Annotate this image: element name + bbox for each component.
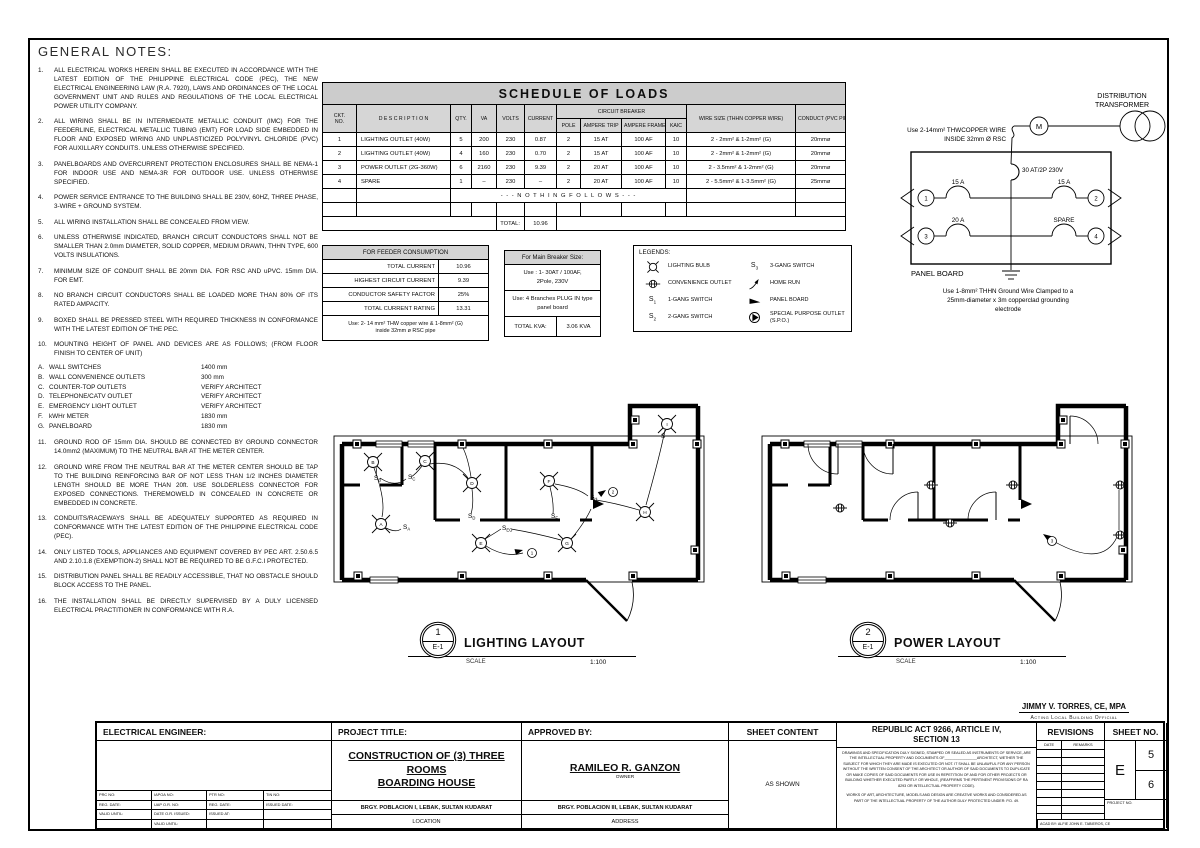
junction-box: [458, 572, 466, 580]
schedule-cell: 2: [557, 147, 581, 161]
approver-name: RAMILEO R. GANZON: [570, 762, 680, 774]
kva-value: 3.06 KVA: [557, 317, 601, 337]
mounting-value: VERIFY ARCHITECT: [201, 383, 318, 393]
switch-label: SF: [551, 513, 558, 521]
convenience-outlet: [924, 481, 938, 489]
note-number: 4.: [38, 193, 49, 211]
junction-box: [1119, 546, 1127, 554]
main-breaker-table: For Main Breaker Size:Use : 1- 30AT / 10…: [504, 250, 601, 337]
nothing-follows-row: - - - N O T H I N G F O L L O W S - - -: [323, 189, 846, 203]
schedule-cell: 100 AF: [622, 175, 666, 189]
junction-box: [353, 440, 361, 448]
sheet-content-value: AS SHOWN: [729, 741, 836, 828]
official-name: JIMMY V. TORRES, CE, MPA: [1019, 702, 1129, 713]
schedule-cell: 25mmø: [796, 175, 846, 189]
engineer-field: [207, 819, 264, 829]
callout-sheet-ref: E-1: [853, 642, 883, 654]
schedule-cell: 230: [497, 161, 525, 175]
note-item: 3.PANELBOARDS AND OVERCURRENT PROTECTION…: [38, 160, 318, 187]
legend-symbol: [644, 259, 661, 274]
schedule-cell: 15 AT: [581, 147, 622, 161]
lighting-callout-bubble: 1 E-1: [422, 624, 454, 656]
note-number: 6.: [38, 233, 49, 260]
breaker-use1: Use : 1- 30AT / 100AF,2Pole, 230V: [505, 265, 601, 291]
schedule-cell: 10: [666, 175, 687, 189]
mounting-value: VERIFY ARCHITECT: [201, 392, 318, 402]
note-text: MOUNTING HEIGHT OF PANEL AND DEVICES ARE…: [54, 340, 318, 358]
engineer-header: ELECTRICAL ENGINEER:: [97, 723, 331, 741]
svg-text:M: M: [1036, 122, 1042, 131]
schedule-cell: 15 AT: [581, 133, 622, 147]
breaker-table: For Main Breaker Size:Use : 1- 30AT / 10…: [504, 250, 601, 337]
svg-text:H: H: [643, 510, 647, 516]
legend-symbol: [746, 293, 763, 308]
junction-box: [693, 440, 701, 448]
schedule-cell: 1: [451, 175, 472, 189]
revisions-date-col: DATE: [1037, 741, 1062, 749]
note-item: 6.UNLESS OTHERWISE INDICATED, BRANCH CIR…: [38, 233, 318, 260]
schedule-row: 2LIGHTING OUTLET (40W)41602300.70215 AT1…: [323, 147, 846, 161]
note-text: POWER SERVICE ENTRANCE TO THE BUILDING S…: [54, 193, 318, 211]
schedule-cell: LIGHTING OUTLET (40W): [357, 133, 451, 147]
revision-date-cell: [1037, 790, 1062, 797]
circuit-wire: [1055, 490, 1119, 554]
note-number: 11.: [38, 438, 49, 456]
schedule-cell: 20 AT: [581, 175, 622, 189]
note-text: DISTRIBUTION PANEL SHALL BE READILY ACCE…: [54, 572, 318, 590]
legend-item: LIGHTING BULB: [644, 258, 742, 275]
project-title-header: PROJECT TITLE:: [332, 723, 521, 741]
light-fixture: F: [540, 472, 558, 490]
note-number: 7.: [38, 267, 49, 285]
svg-text:B: B: [371, 460, 374, 466]
junction-box: [886, 572, 894, 580]
mounting-label: TELEPHONE/CATV OUTLET: [49, 392, 201, 402]
engineer-field: [97, 819, 152, 829]
note-item: 13.CONDUITS/RACEWAYS SHALL BE ADEQUATELY…: [38, 514, 318, 541]
revision-date-cell: [1037, 806, 1062, 813]
mounting-key: G.: [38, 422, 49, 432]
note-item: 1.ALL ELECTRICAL WORKS HEREIN SHALL BE E…: [38, 66, 318, 111]
note-item: 15.DISTRIBUTION PANEL SHALL BE READILY A…: [38, 572, 318, 590]
junction-box: [354, 572, 362, 580]
revision-date-cell: [1037, 766, 1062, 773]
panel-board-icon: [747, 295, 762, 307]
window-symbol: [408, 441, 434, 447]
svg-text:TRANSFORMER: TRANSFORMER: [1095, 102, 1149, 109]
power-layout-title: POWER LAYOUT: [894, 636, 1001, 650]
main-door-leaf: [586, 580, 627, 621]
svg-text:Use 1-8mm² THHN Ground Wire Cl: Use 1-8mm² THHN Ground Wire Clamped to a: [943, 288, 1074, 295]
power-svg: 3: [758, 400, 1150, 632]
sheet-number-bottom: 6: [1136, 771, 1166, 800]
mounting-key: D.: [38, 392, 49, 402]
schedule-cell: 2 - 2mm² & 1-2mm² (G): [687, 133, 796, 147]
switch-s1-icon: S1: [649, 296, 656, 304]
svg-text:3: 3: [924, 234, 928, 240]
note-number: 5.: [38, 218, 49, 227]
schedule-cell: 1: [323, 133, 357, 147]
feeder-value: 25%: [439, 288, 489, 302]
home-run: 1: [514, 547, 536, 557]
revision-date-cell: [1037, 758, 1062, 765]
note-text: GROUND WIRE FROM THE NEUTRAL BAR AT THE …: [54, 463, 318, 508]
legend-label: 2-GANG SWITCH: [668, 314, 712, 321]
svg-text:Use 2-14mm² THWCOPPER WIRE: Use 2-14mm² THWCOPPER WIRE: [907, 127, 1006, 134]
schedule-cell: 10: [666, 147, 687, 161]
light-fixture: I: [658, 415, 676, 433]
col-qty: QTY.: [451, 105, 472, 133]
main-door-leaf: [1014, 580, 1055, 621]
caption-line: [838, 656, 1066, 657]
interior-walls: [770, 444, 1020, 520]
engineer-field: VALID UNTIL:: [97, 809, 152, 819]
revision-row: [1037, 798, 1104, 806]
legend-label: LIGHTING BULB: [668, 263, 710, 270]
note-number: 13.: [38, 514, 49, 541]
junction-box: [1057, 440, 1065, 448]
approved-by-header: APPROVED BY:: [522, 723, 728, 741]
circuit-wire: [485, 529, 501, 539]
convenience-outlet: [833, 504, 847, 512]
note-number: 1.: [38, 66, 49, 111]
col-va: VA: [472, 105, 497, 133]
junction-box: [782, 572, 790, 580]
light-fixture: E: [472, 534, 490, 552]
republic-act-para2: WORKS OF ART, ARCHITECTURE, MODELS AND D…: [842, 793, 1031, 804]
revision-row: [1037, 766, 1104, 774]
schedule-cell: SPARE: [357, 175, 451, 189]
engineer-field: [264, 809, 331, 819]
mounting-heights: A.WALL SWITCHES1400 mmB.WALL CONVENIENCE…: [38, 363, 318, 432]
switch-label: SC: [408, 474, 415, 482]
sheet-series: E: [1105, 741, 1136, 799]
revision-row: [1037, 758, 1104, 766]
mounting-row: B.WALL CONVENIENCE OUTLETS300 mm: [38, 373, 318, 383]
light-fixture: H: [636, 503, 654, 521]
project-location: BRGY. POBLACION I, LEBAK, SULTAN KUDARAT: [332, 800, 521, 814]
schedule-cell: 100 AF: [622, 147, 666, 161]
feeder-note: Use: 2- 14 mm² THW copper wire & 1-8mm² …: [323, 316, 489, 341]
schedule-table: SCHEDULE OF LOADSCKT.NO.D E S C R I P T …: [322, 82, 846, 231]
note-number: 14.: [38, 548, 49, 566]
col-current: CURRENT: [525, 105, 557, 133]
junction-box: [458, 440, 466, 448]
total-label: TOTAL:: [497, 217, 525, 231]
total-value: 10.96: [525, 217, 557, 231]
project-title-line1: CONSTRUCTION OF (3) THREE ROOMS: [332, 750, 521, 777]
schedule-cell: 10: [666, 133, 687, 147]
note-item: 5.ALL WIRING INSTALLATION SHALL BE CONCE…: [38, 218, 318, 227]
note-text: ALL WIRING INSTALLATION SHALL BE CONCEAL…: [54, 218, 318, 227]
schedule-cell: 230: [497, 175, 525, 189]
legend-label: 3-GANG SWITCH: [770, 263, 814, 270]
note-text: THE INSTALLATION SHALL BE DIRECTLY SUPER…: [54, 597, 318, 615]
lighting-layout-title: LIGHTING LAYOUT: [464, 636, 585, 650]
mounting-row: C.COUNTER-TOP OUTLETSVERIFY ARCHITECT: [38, 383, 318, 393]
feeder-row: TOTAL CURRENT RATING13.31: [323, 302, 489, 316]
republic-act-para1: DRAWINGS AND SPECIFICATION DULY SIGNED, …: [842, 751, 1031, 789]
note-number: 8.: [38, 291, 49, 309]
mounting-key: A.: [38, 363, 49, 373]
switch-label: SH: [590, 494, 597, 502]
feeder-title: FOR FEEDER CONSUMPTION: [323, 246, 489, 260]
mounting-label: WALL SWITCHES: [49, 363, 201, 373]
note-text: PANELBOARDS AND OVERCURRENT PROTECTION E…: [54, 160, 318, 187]
callout-sheet-ref: E-1: [423, 642, 453, 654]
engineer-field: ISSUED DATE:: [264, 800, 331, 810]
engineer-field: TIN NO:: [264, 790, 331, 800]
legend-item: SPECIAL PURPOSE OUTLET (S.P.O.): [746, 309, 850, 326]
circuit-wire: [550, 487, 553, 514]
legends-right-column: S33-GANG SWITCHHOME RUNPANEL BOARDSPECIA…: [746, 258, 850, 326]
convenience-outlet-icon: [645, 277, 661, 291]
svg-text:20 A: 20 A: [952, 217, 965, 224]
power-callout-bubble: 2 E-1: [852, 624, 884, 656]
mounting-row: D.TELEPHONE/CATV OUTLETVERIFY ARCHITECT: [38, 392, 318, 402]
legends-title: LEGENDS:: [639, 249, 851, 256]
svg-text:25mm-diameter x 3m copperclad: 25mm-diameter x 3m copperclad grounding: [947, 297, 1069, 304]
mounting-label: WALL CONVENIENCE OUTLETS: [49, 373, 201, 383]
note-item: 12.GROUND WIRE FROM THE NEUTRAL BAR AT T…: [38, 463, 318, 508]
circuit-wire: [463, 448, 471, 477]
feeder-value: 10.96: [439, 260, 489, 274]
window-symbol: [836, 441, 862, 447]
switch-label: SD: [468, 513, 475, 521]
junction-box: [629, 572, 637, 580]
junction-box: [972, 440, 980, 448]
revisions-header: REVISIONS: [1037, 723, 1104, 741]
legend-label: HOME RUN: [770, 280, 800, 287]
sheet-no-header: SHEET NO.: [1105, 723, 1166, 741]
legend-symbol: S3: [746, 259, 763, 274]
door-swing: [890, 492, 918, 520]
col-ckt: CKT.NO.: [323, 105, 357, 133]
total-row: TOTAL:10.96: [323, 217, 846, 231]
svg-text:G: G: [565, 541, 569, 547]
circuit-wire: [386, 528, 401, 531]
svg-text:C: C: [423, 459, 427, 465]
sheet-numbers: 5 6: [1136, 741, 1166, 799]
svg-text:I: I: [666, 422, 667, 428]
switch-s3-icon: S3: [751, 262, 758, 270]
schedule-row: 3POWER OUTLET (2G-360W)621602309.39220 A…: [323, 161, 846, 175]
mounting-value: 1400 mm: [201, 363, 318, 373]
legend-symbol: [644, 276, 661, 291]
schedule-cell: 2: [557, 161, 581, 175]
circuit-wire: [471, 489, 473, 514]
revisions-columns: DATE REMARKS: [1037, 741, 1104, 750]
mounting-key: E.: [38, 402, 49, 412]
engineer-field: REG. DATE:: [207, 800, 264, 810]
note-text: UNLESS OTHERWISE INDICATED, BRANCH CIRCU…: [54, 233, 318, 260]
svg-text:PANEL BOARD: PANEL BOARD: [911, 269, 964, 278]
home-run: 2: [598, 488, 618, 498]
revision-date-cell: [1037, 750, 1062, 757]
junction-box: [544, 440, 552, 448]
circuit-wire: [511, 529, 561, 540]
schedule-cell: 4: [451, 147, 472, 161]
note-number: 9.: [38, 316, 49, 334]
circuit-wire: [411, 466, 422, 477]
switch-s2-icon: S2: [649, 313, 656, 321]
project-title-line2: BOARDING HOUSE: [378, 777, 475, 791]
col-ampere-trip: AMPERE TRIP: [581, 119, 622, 133]
schedule-title: SCHEDULE OF LOADS: [323, 83, 846, 105]
note-item: 11.GROUND ROD OF 15mm DIA. SHOULD BE CON…: [38, 438, 318, 456]
schedule-cell: 3: [323, 161, 357, 175]
schedule-cell: 230: [497, 133, 525, 147]
feeder-label: TOTAL CURRENT RATING: [323, 302, 439, 316]
legend-symbol: S2: [644, 310, 661, 325]
circuit-wire: [646, 430, 665, 505]
main-door-swing: [1055, 582, 1061, 621]
svg-text:E: E: [479, 541, 482, 547]
note-item: 2.ALL WIRING SHALL BE IN INTERMEDIATE ME…: [38, 117, 318, 153]
junction-box: [1121, 440, 1129, 448]
feeder-consumption-table: FOR FEEDER CONSUMPTIONTOTAL CURRENT10.96…: [322, 245, 489, 341]
schedule-cell: 20mmø: [796, 133, 846, 147]
revision-row: [1037, 782, 1104, 790]
note-text: NO BRANCH CIRCUIT CONDUCTORS SHALL BE LO…: [54, 291, 318, 309]
project-title: CONSTRUCTION OF (3) THREE ROOMS BOARDING…: [332, 741, 521, 800]
light-fixture: C: [416, 452, 434, 470]
svg-text:4: 4: [1094, 234, 1098, 240]
light-fixture: G: [558, 534, 576, 552]
col-ampere-frame: AMPERE FRAME: [622, 119, 666, 133]
engineer-field: IAPOA NO:: [152, 790, 207, 800]
scale-label: SCALE: [896, 659, 916, 665]
note-item: 9.BOXED SHALL BE PRESSED STEEL WITH REQU…: [38, 316, 318, 334]
mounting-value: 300 mm: [201, 373, 318, 383]
exterior-walls: [770, 406, 1126, 580]
kva-label: TOTAL KVA:: [505, 317, 557, 337]
col-pole: POLE: [557, 119, 581, 133]
legend-item: HOME RUN: [746, 275, 850, 292]
home-run-icon: [747, 277, 762, 291]
note-text: GROUND ROD OF 15mm DIA. SHOULD BE CONNEC…: [54, 438, 318, 456]
window-symbol: [376, 441, 402, 447]
svg-text:INSIDE 32mm Ø RSC: INSIDE 32mm Ø RSC: [944, 136, 1006, 143]
engineer-field: VALID UNTIL:: [152, 819, 207, 829]
revisions-remarks-col: REMARKS: [1062, 741, 1104, 749]
schedule-cell: 2: [557, 133, 581, 147]
note-item: 16.THE INSTALLATION SHALL BE DIRECTLY SU…: [38, 597, 318, 615]
schedule-cell: 160: [472, 147, 497, 161]
callout-number: 1: [423, 625, 453, 642]
sheet-content-section: SHEET CONTENT AS SHOWN: [729, 723, 837, 828]
republic-act-header-line2: SECTION 13: [837, 735, 1036, 745]
note-text: ONLY LISTED TOOLS, APPLIANCES AND EQUIPM…: [54, 548, 318, 566]
door-swing: [1070, 416, 1098, 444]
schedule-cell: 9.39: [525, 161, 557, 175]
note-text: ALL WIRING SHALL BE IN INTERMEDIATE META…: [54, 117, 318, 153]
legends-left-column: LIGHTING BULBCONVENIENCE OUTLETS11-GANG …: [644, 258, 742, 326]
approved-by-section: APPROVED BY: RAMILEO R. GANZON OWNER BRG…: [522, 723, 729, 828]
mounting-row: A.WALL SWITCHES1400 mm: [38, 363, 318, 373]
col-conduct: CONDUCT (PVC PIPE): [796, 105, 846, 133]
schedule-cell: 5: [451, 133, 472, 147]
revisions-rows: [1037, 750, 1104, 830]
location-label: LOCATION: [332, 814, 521, 828]
note-text: BOXED SHALL BE PRESSED STEEL WITH REQUIR…: [54, 316, 318, 334]
door-leaves: [838, 416, 1070, 520]
general-notes-title: GENERAL NOTES:: [38, 44, 318, 59]
spo-icon: [747, 310, 762, 325]
feeder-value: 9.39: [439, 274, 489, 288]
riser-svg: DISTRIBUTIONTRANSFORMERMUse 2-14mm² THWC…: [856, 86, 1174, 318]
engineer-section: ELECTRICAL ENGINEER: PRC NO:IAPOA NO:PTR…: [97, 723, 332, 828]
sheet-number-top: 5: [1136, 741, 1166, 771]
mounting-label: kWHr METER: [49, 412, 201, 422]
engineer-field: [264, 819, 331, 829]
svg-text:15 A: 15 A: [1058, 179, 1071, 186]
svg-text:1: 1: [924, 196, 928, 202]
legend-item: PANEL BOARD: [746, 292, 850, 309]
schedule-cell: 20mmø: [796, 161, 846, 175]
empty-row: [323, 203, 846, 217]
legend-label: PANEL BOARD: [770, 297, 809, 304]
junction-box: [1057, 572, 1065, 580]
republic-act-section: REPUBLIC ACT 9266, ARTICLE IV, SECTION 1…: [837, 723, 1037, 828]
callout-number: 2: [853, 625, 883, 642]
mounting-key: C.: [38, 383, 49, 393]
signature-block: JIMMY V. TORRES, CE, MPA Acting Local Bu…: [978, 696, 1170, 721]
note-number: 3.: [38, 160, 49, 187]
scale-value: 1:100: [1020, 659, 1036, 666]
schedule-cell: 0.87: [525, 133, 557, 147]
note-item: 10.MOUNTING HEIGHT OF PANEL AND DEVICES …: [38, 340, 318, 358]
legend-symbol: [746, 310, 763, 325]
mounting-label: COUNTER-TOP OUTLETS: [49, 383, 201, 393]
schedule-cell: 0.70: [525, 147, 557, 161]
feeder-row: TOTAL CURRENT10.96: [323, 260, 489, 274]
feeder-row: HIGHEST CIRCUIT CURRENT9.39: [323, 274, 489, 288]
svg-text:SPARE: SPARE: [1054, 217, 1075, 224]
mounting-row: E.EMERGENCY LIGHT OUTLETVERIFY ARCHITECT: [38, 402, 318, 412]
breaker-use2: Use: 4 Branches PLUG IN typepanel board: [505, 291, 601, 317]
mounting-label: EMERGENCY LIGHT OUTLET: [49, 402, 201, 412]
lighting-layout-plan: ABCDEFGHISBSCSASDSEGSFSHS12: [330, 400, 722, 632]
circuit-wire: [596, 500, 639, 510]
revision-row: [1037, 806, 1104, 814]
convenience-outlet: [1006, 481, 1020, 489]
schedule-cell: 2160: [472, 161, 497, 175]
circuit-wire: [555, 484, 588, 496]
republic-act-header-line1: REPUBLIC ACT 9266, ARTICLE IV,: [837, 725, 1036, 735]
republic-act-body: DRAWINGS AND SPECIFICATION DULY SIGNED, …: [837, 748, 1036, 807]
junction-box: [972, 572, 980, 580]
approver: RAMILEO R. GANZON OWNER: [522, 741, 728, 800]
revision-row: [1037, 790, 1104, 798]
feeder-label: CONDUCTOR SAFETY FACTOR: [323, 288, 439, 302]
revisions-section: REVISIONS DATE REMARKS: [1037, 723, 1105, 828]
schedule-cell: 100 AF: [622, 161, 666, 175]
lighting-caption: 1 E-1 LIGHTING LAYOUT SCALE 1:100: [408, 624, 643, 674]
col-wire-size: WIRE SIZE (THHN COPPER WIRE): [687, 105, 796, 133]
main-door-swing: [627, 582, 633, 621]
svg-text:2: 2: [1094, 196, 1098, 202]
legend-label: SPECIAL PURPOSE OUTLET (S.P.O.): [770, 311, 850, 324]
panel-board-symbol: [1021, 499, 1032, 509]
power-layout-plan: 3: [758, 400, 1150, 632]
schedule-of-loads: SCHEDULE OF LOADSCKT.NO.D E S C R I P T …: [322, 82, 845, 231]
mounting-key: F.: [38, 412, 49, 422]
sheet-no-section: SHEET NO. E 5 6 PROJECT NO.: [1105, 723, 1167, 828]
approver-address: BRGY. POBLACION III, LEBAK, SULTAN KUDAR…: [522, 800, 728, 814]
note-item: 7.MINIMUM SIZE OF CONDUIT SHALL BE 20mm …: [38, 267, 318, 285]
project-title-section: PROJECT TITLE: CONSTRUCTION OF (3) THREE…: [332, 723, 522, 828]
